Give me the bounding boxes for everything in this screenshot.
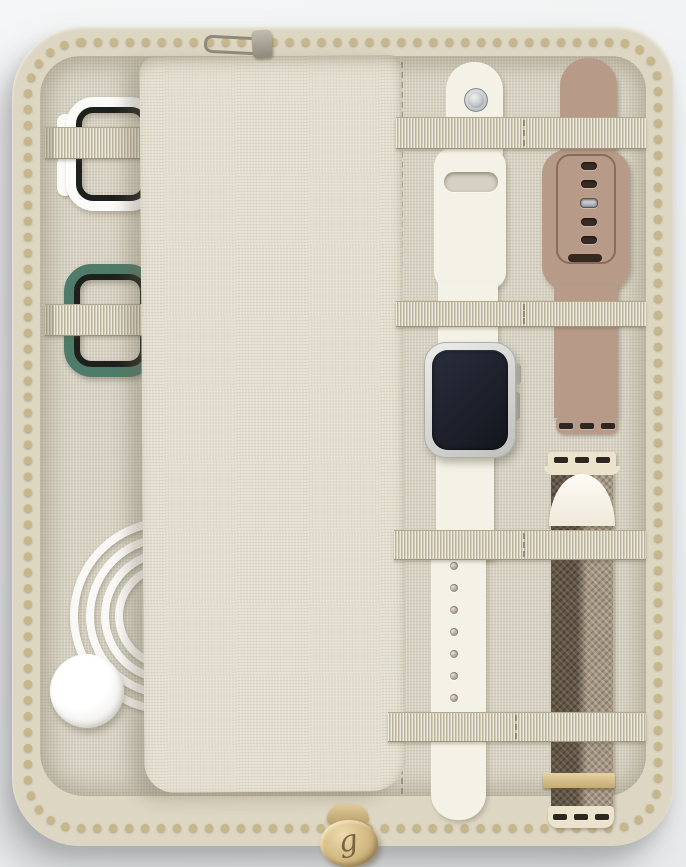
strap-fold-end xyxy=(45,128,54,158)
gold-zipper-pull-disc: g xyxy=(320,820,378,867)
strap-fold-end xyxy=(45,305,54,335)
band-tuck-slot xyxy=(444,172,498,192)
lug-slots xyxy=(556,418,618,434)
taupe-end-slot xyxy=(568,254,602,262)
elastic-strap-right-4 xyxy=(388,712,646,742)
taupe-band-holes xyxy=(580,162,598,244)
band-pin-holes xyxy=(446,562,462,702)
strap-stitch xyxy=(523,533,525,557)
band-snap-pin xyxy=(464,88,488,112)
product-photo-stage: g xyxy=(0,0,686,867)
taupe-band-lug xyxy=(556,418,618,434)
strap-stitch xyxy=(523,304,525,324)
monogram-letter: g xyxy=(337,825,361,858)
woven-band-lug-bottom xyxy=(548,806,614,828)
apple-watch xyxy=(424,342,516,458)
zipper-slider-top xyxy=(251,29,273,58)
elastic-strap-right-2 xyxy=(396,301,646,327)
lug-slots xyxy=(548,806,614,828)
watch-screen xyxy=(432,350,508,450)
center-pouch-flap xyxy=(139,55,406,793)
strap-stitch xyxy=(523,120,525,146)
white-sport-band-tail xyxy=(431,552,486,820)
elastic-strap-right-1 xyxy=(396,117,646,149)
white-sport-band-wide-section xyxy=(434,148,506,290)
elastic-strap-right-3 xyxy=(394,530,646,560)
elastic-strap-left-2 xyxy=(45,304,157,336)
strap-stitch xyxy=(515,715,517,739)
woven-band-clasp-bar xyxy=(543,773,615,788)
magnetic-charger-puck xyxy=(50,654,124,728)
